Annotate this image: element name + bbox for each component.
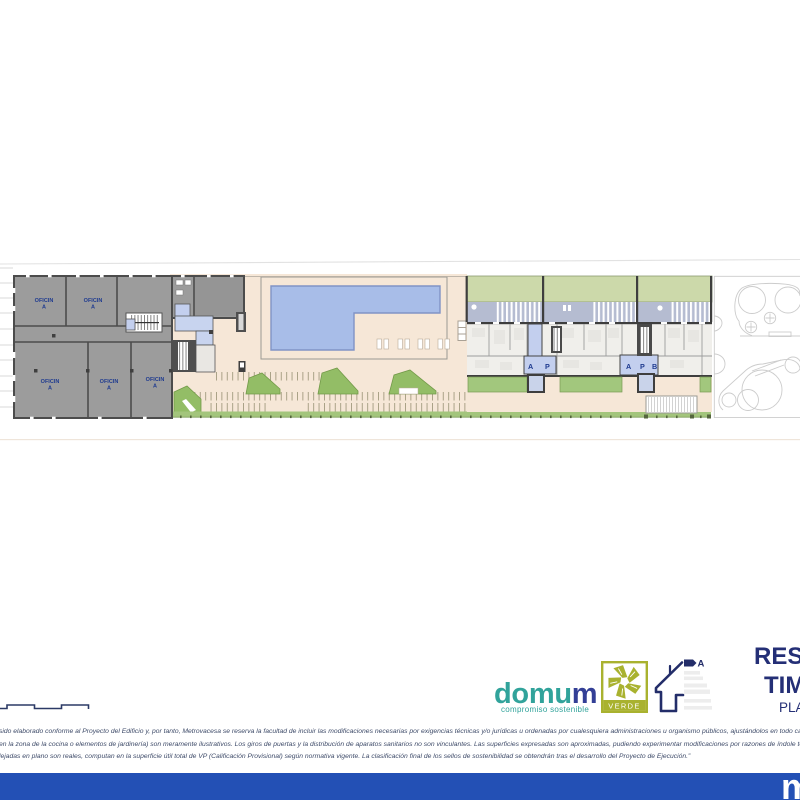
svg-text:A: A [107, 386, 111, 392]
svg-text:A: A [626, 362, 631, 371]
svg-text:OFICIN: OFICIN [35, 298, 54, 304]
svg-text:A: A [48, 386, 52, 392]
svg-text:OFICIN: OFICIN [41, 379, 60, 385]
svg-text:P: P [640, 362, 645, 371]
svg-text:P: P [545, 362, 550, 371]
svg-text:A: A [91, 305, 95, 311]
svg-text:A: A [698, 659, 705, 670]
svg-text:A: A [42, 305, 46, 311]
svg-text:A: A [153, 384, 157, 390]
svg-text:VERDE: VERDE [608, 702, 640, 711]
svg-text:OFICIN: OFICIN [146, 377, 165, 383]
svg-text:A: A [528, 362, 533, 371]
svg-text:OFICIN: OFICIN [100, 379, 119, 385]
svg-text:OFICIN: OFICIN [84, 298, 103, 304]
svg-text:B: B [652, 362, 657, 371]
